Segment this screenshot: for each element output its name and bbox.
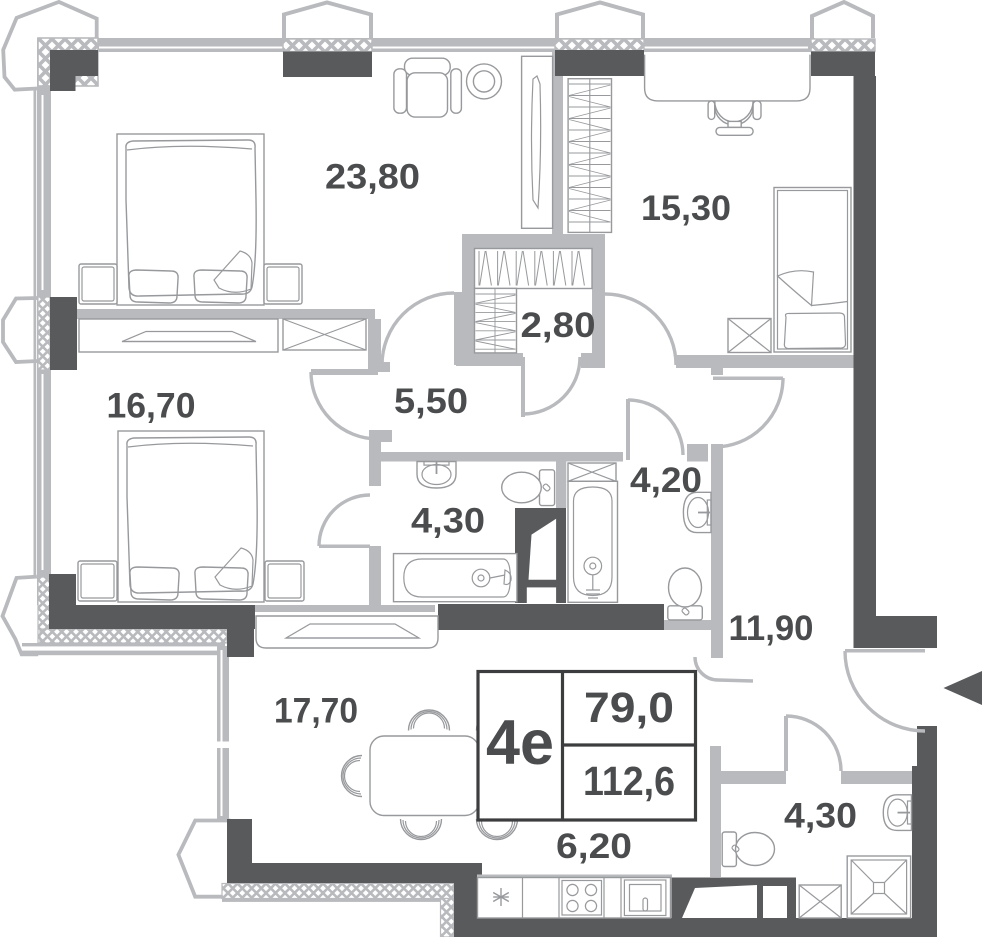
svg-text:15,30: 15,30 [641,189,731,228]
svg-text:4,30: 4,30 [411,502,485,541]
svg-text:4е: 4е [486,708,554,778]
svg-text:16,70: 16,70 [107,387,196,426]
svg-text:79,0: 79,0 [584,684,674,732]
svg-text:4,20: 4,20 [630,461,702,500]
svg-text:4,30: 4,30 [784,797,857,836]
svg-text:17,70: 17,70 [274,692,358,731]
svg-text:5,50: 5,50 [394,382,468,421]
svg-text:11,90: 11,90 [729,609,814,648]
svg-text:6,20: 6,20 [556,827,632,866]
svg-text:23,80: 23,80 [325,158,420,197]
svg-text:2,80: 2,80 [521,306,596,345]
svg-text:112,6: 112,6 [583,758,675,804]
